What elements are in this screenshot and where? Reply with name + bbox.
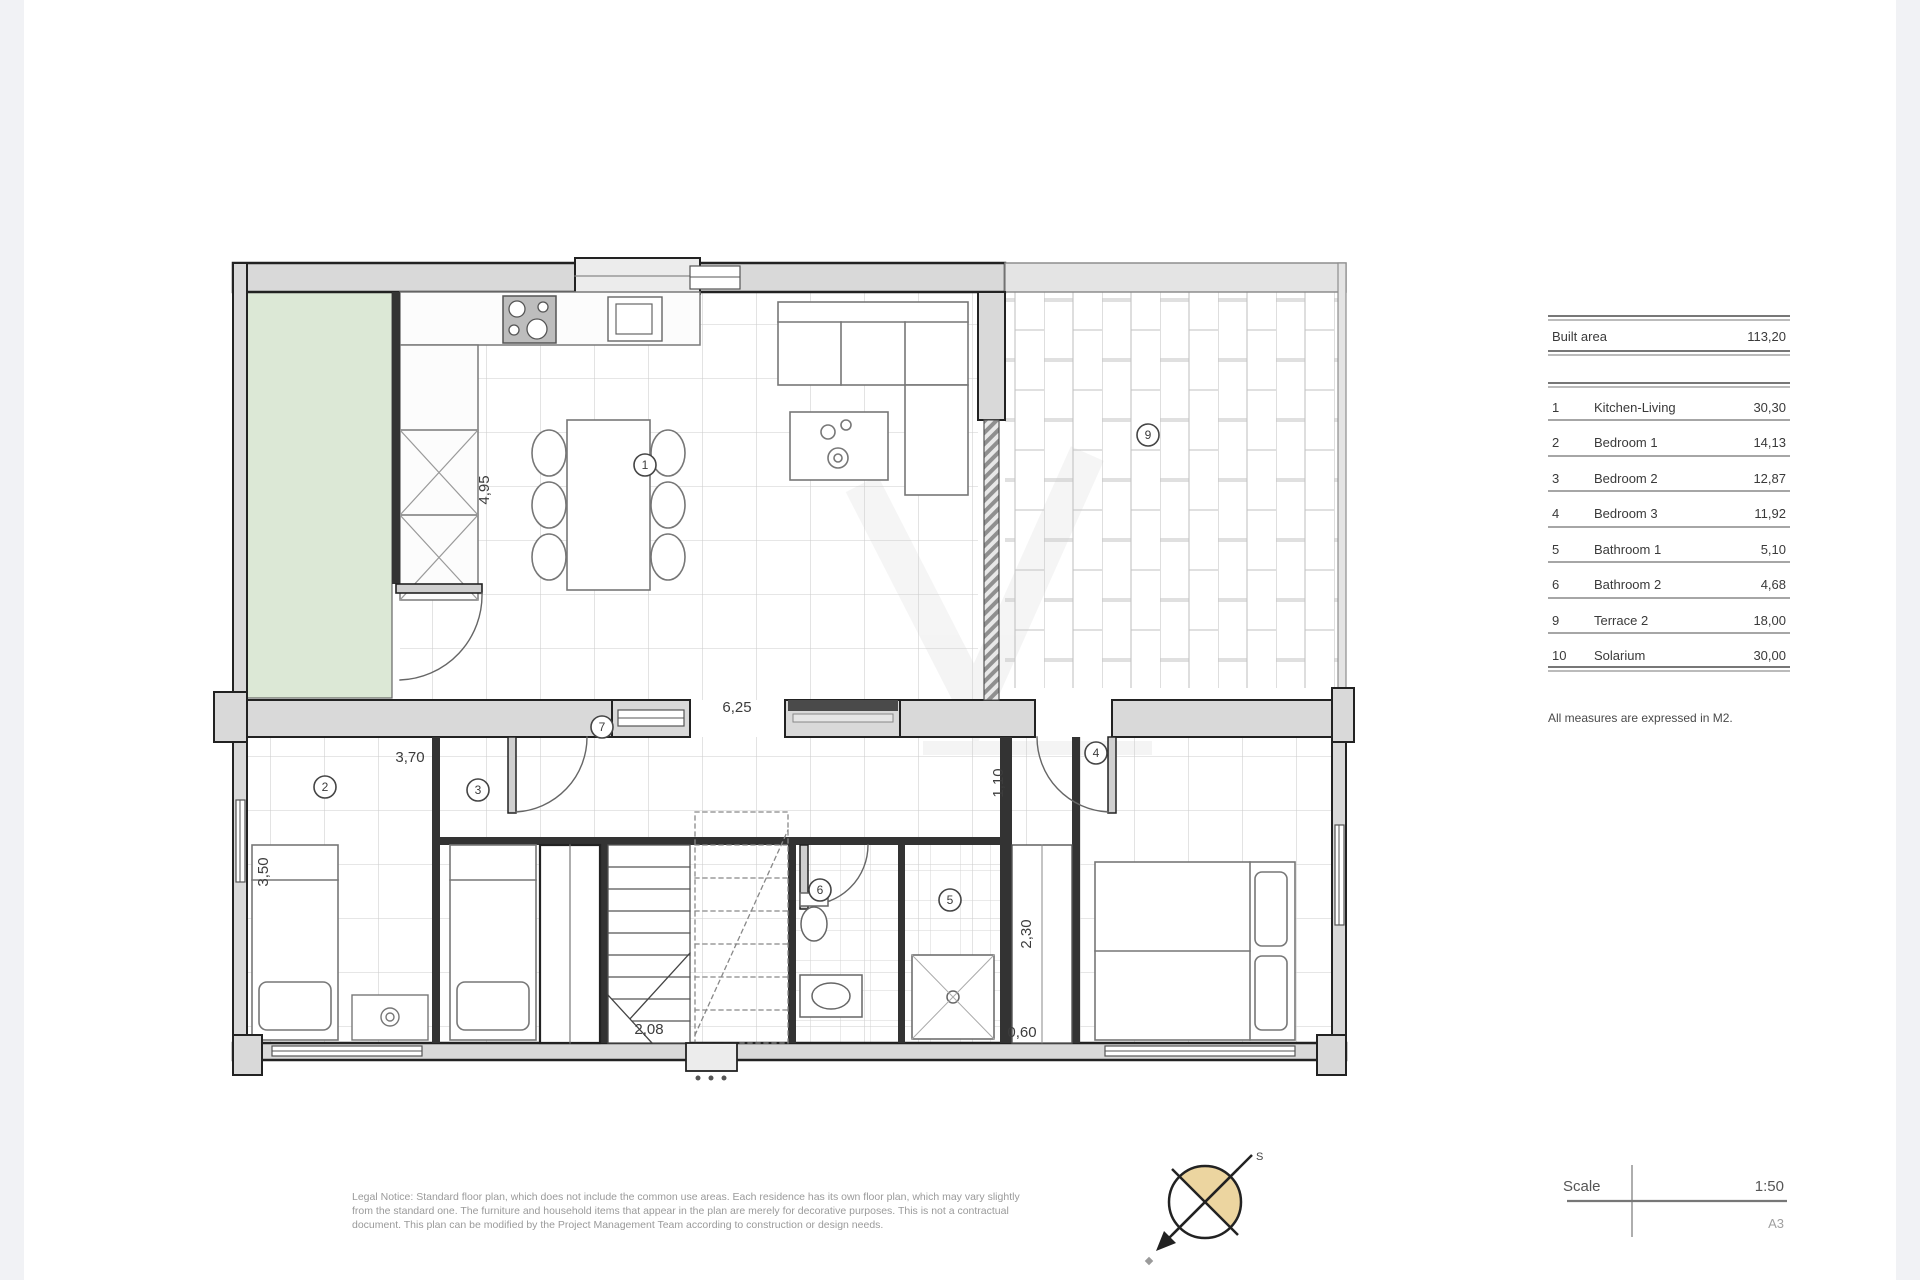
svg-text:Bedroom 2: Bedroom 2 [1594, 471, 1658, 486]
compass-letter: S [1256, 1151, 1263, 1163]
left-page-band [0, 0, 24, 1280]
sink-icon [608, 297, 662, 341]
wall-terrace-top [1005, 263, 1346, 292]
measures-footnote: All measures are expressed in M2. [1548, 711, 1733, 725]
dim-closet-height: 2,30 [1018, 919, 1035, 948]
wall-bed1-bed2 [432, 737, 440, 1043]
post-bottom-left [233, 1035, 262, 1075]
svg-text:3: 3 [1552, 471, 1559, 486]
shower-icon [912, 955, 994, 1039]
svg-text:30,00: 30,00 [1753, 648, 1786, 663]
wall-divider-left [233, 700, 612, 737]
legal-line-3: document. This plan can be modified by t… [352, 1219, 883, 1231]
svg-text:2: 2 [322, 780, 329, 794]
svg-text:6: 6 [817, 883, 824, 897]
wall-corridor [440, 837, 1000, 845]
svg-text:5: 5 [1552, 542, 1559, 557]
dim-stairs-width: 2,08 [634, 1021, 663, 1038]
right-page-band [1896, 0, 1920, 1280]
svg-text:11,92: 11,92 [1754, 506, 1786, 521]
built-area-value: 113,20 [1747, 329, 1786, 344]
terrace-floor [1005, 292, 1338, 688]
svg-text:18,00: 18,00 [1753, 613, 1786, 628]
hob-icon [503, 296, 556, 343]
svg-text:9: 9 [1145, 428, 1152, 442]
svg-text:6: 6 [1552, 577, 1559, 592]
dim-bedroom1-width: 3,70 [395, 749, 424, 766]
wall-stairs-left [600, 845, 608, 1043]
dim-closet-width: 0,60 [1007, 1024, 1036, 1041]
svg-text:4,68: 4,68 [1761, 577, 1786, 592]
legal-line-2: from the standard one. The furniture and… [352, 1205, 1009, 1217]
room-badge-bedroom3: 4 [1085, 742, 1107, 764]
scale-value: 1:50 [1755, 1178, 1784, 1195]
svg-text:Bedroom 1: Bedroom 1 [1594, 435, 1658, 450]
wall-bed3-left [1072, 737, 1080, 1043]
svg-text:Bathroom 2: Bathroom 2 [1594, 577, 1661, 592]
svg-text:9: 9 [1552, 613, 1559, 628]
room-badge-kitchen: 1 [634, 454, 656, 476]
room-badge-bedroom2: 3 [467, 779, 489, 801]
scale-label: Scale [1563, 1178, 1601, 1195]
legal-line-1: Legal Notice: Standard floor plan, which… [352, 1191, 1020, 1203]
svg-text:Bathroom 1: Bathroom 1 [1594, 542, 1661, 557]
svg-text:7: 7 [599, 720, 606, 734]
wall-terrace-right [1338, 263, 1346, 700]
room-badge-bathroom2: 6 [809, 879, 831, 901]
room-badge-hall: 7 [591, 716, 613, 738]
wall-divider-right2 [1112, 700, 1346, 737]
svg-text:4: 4 [1552, 506, 1559, 521]
window-bottom-1 [272, 1046, 422, 1056]
window-bottom-2 [1105, 1046, 1295, 1056]
pilaster-left [214, 692, 247, 742]
pilaster-right [1332, 688, 1354, 742]
paper-size: A3 [1768, 1216, 1784, 1231]
tv-unit [788, 700, 898, 722]
room-badge-terrace: 9 [1137, 424, 1159, 446]
wall-divider-right1 [900, 700, 1035, 737]
dining-table [532, 420, 685, 590]
floor-plan: 4,95 6,25 3,70 3,50 2,08 1,10 2,30 0,60 … [214, 258, 1354, 1081]
svg-text:1: 1 [642, 458, 649, 472]
divider-window [618, 710, 684, 726]
svg-text:Terrace 2: Terrace 2 [1594, 613, 1648, 628]
bed-double [1095, 862, 1295, 1040]
dim-bedroom1-height: 3,50 [255, 857, 272, 886]
wall-bath1-left [898, 845, 905, 1043]
svg-text:5: 5 [947, 893, 954, 907]
bed-single-2 [450, 845, 536, 1040]
wardrobe [540, 845, 600, 1043]
svg-text:Kitchen-Living: Kitchen-Living [1594, 400, 1676, 415]
built-area-label: Built area [1552, 329, 1608, 344]
room-badge-bedroom1: 2 [314, 776, 336, 798]
room-badge-bathroom1: 5 [939, 889, 961, 911]
svg-text:1: 1 [1552, 400, 1559, 415]
svg-text:10: 10 [1552, 648, 1566, 663]
wall-bath2-left [788, 845, 796, 1043]
svg-text:30,30: 30,30 [1753, 400, 1786, 415]
svg-text:12,87: 12,87 [1753, 471, 1786, 486]
window-left [236, 800, 245, 882]
svg-text:2: 2 [1552, 435, 1559, 450]
garden-porch [247, 268, 392, 698]
svg-text:Solarium: Solarium [1594, 648, 1645, 663]
window-right [1335, 825, 1344, 925]
wall-left [233, 263, 247, 1043]
svg-text:Bedroom 3: Bedroom 3 [1594, 506, 1658, 521]
window-top [690, 266, 740, 289]
svg-text:3: 3 [475, 783, 482, 797]
coffee-table [790, 412, 888, 480]
dim-hall-width: 1,10 [990, 768, 1007, 797]
floor-plan-sheet: 4,95 6,25 3,70 3,50 2,08 1,10 2,30 0,60 … [0, 0, 1920, 1280]
svg-text:4: 4 [1093, 746, 1100, 760]
post-bottom-right [1317, 1035, 1346, 1075]
svg-text:14,13: 14,13 [1753, 435, 1786, 450]
svg-text:5,10: 5,10 [1761, 542, 1786, 557]
dim-kitchen-height: 4,95 [476, 475, 493, 504]
bathroom-sink-icon [800, 975, 862, 1017]
dim-living-width: 6,25 [722, 699, 751, 716]
nightstand [352, 995, 428, 1040]
